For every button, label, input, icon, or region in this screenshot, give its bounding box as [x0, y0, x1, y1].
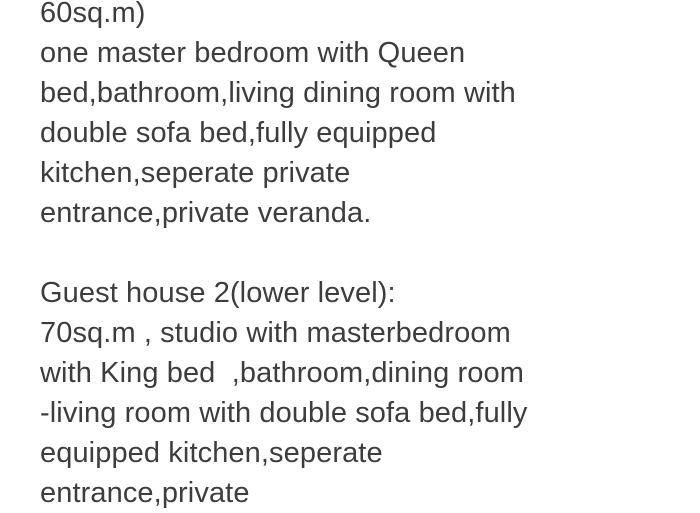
listing-description-text: 60sq.m) one master bedroom with Queen be… [40, 0, 670, 513]
